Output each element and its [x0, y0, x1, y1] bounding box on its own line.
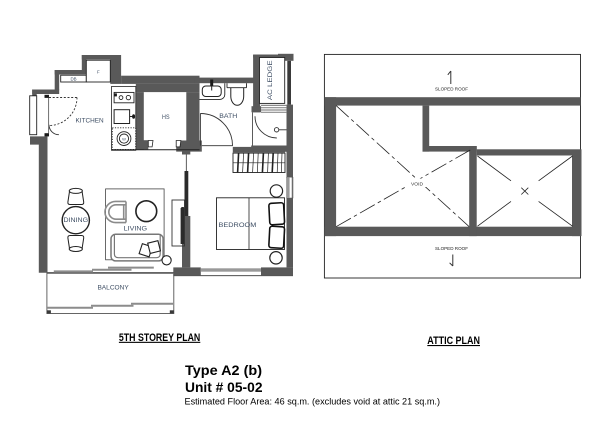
svg-text:DINING: DINING — [64, 217, 89, 224]
svg-text:BATH: BATH — [219, 113, 237, 120]
svg-text:DB: DB — [70, 76, 76, 81]
svg-text:5TH STOREY PLAN: 5TH STOREY PLAN — [119, 332, 200, 344]
svg-text:Unit # 05-02: Unit # 05-02 — [185, 379, 263, 395]
svg-text:Type A2 (b): Type A2 (b) — [185, 362, 262, 378]
svg-text:F: F — [97, 69, 100, 74]
svg-text:W: W — [122, 136, 126, 141]
svg-text:SLOPED ROOF: SLOPED ROOF — [435, 246, 468, 252]
svg-text:VOID: VOID — [411, 182, 424, 187]
svg-text:AC LEDGE: AC LEDGE — [267, 60, 274, 100]
svg-text:HS: HS — [162, 114, 170, 121]
svg-text:BALCONY: BALCONY — [97, 285, 129, 292]
svg-text:ATTIC PLAN: ATTIC PLAN — [427, 335, 480, 347]
svg-text:SLOPED ROOF: SLOPED ROOF — [435, 87, 468, 93]
svg-text:LIVING: LIVING — [124, 226, 147, 233]
svg-text:Estimated Floor Area: 46 sq.m.: Estimated Floor Area: 46 sq.m. (excludes… — [185, 397, 441, 408]
svg-text:KITCHEN: KITCHEN — [76, 117, 104, 124]
svg-text:BEDROOM: BEDROOM — [219, 222, 257, 229]
